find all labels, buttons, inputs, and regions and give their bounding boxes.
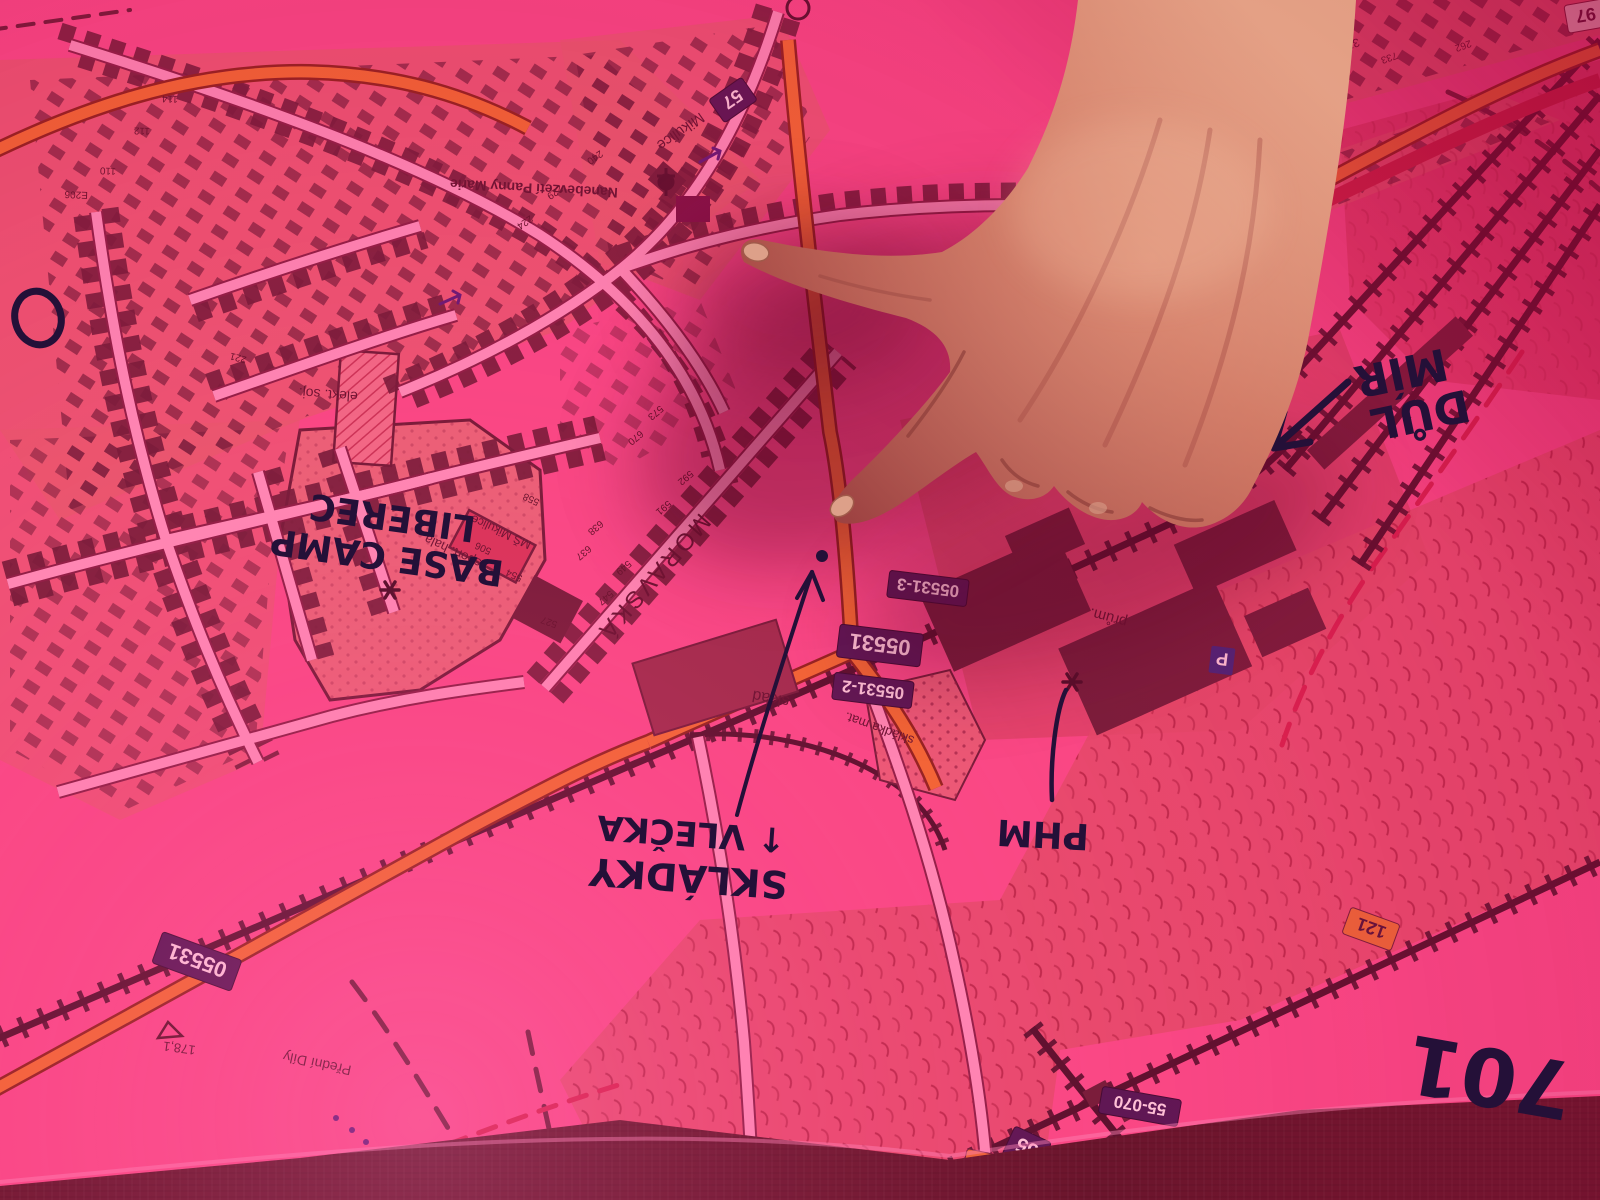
annotation-phm: PHM (996, 811, 1090, 857)
annotation-skladky: SKLÁDKY ↑ VLEČKA (587, 806, 792, 907)
skladky-target-dot (816, 550, 828, 562)
skin-sheen (1010, 120, 1270, 300)
map-scene: Mikulice Nanebevzetí Panny Marie MORAVSK… (0, 0, 1600, 1200)
map-photo: Mikulice Nanebevzetí Panny Marie MORAVSK… (0, 0, 1600, 1200)
red-tint (0, 0, 1600, 1200)
knuckle-nail-2 (1089, 502, 1107, 514)
knuckle-nail-1 (1005, 480, 1023, 492)
